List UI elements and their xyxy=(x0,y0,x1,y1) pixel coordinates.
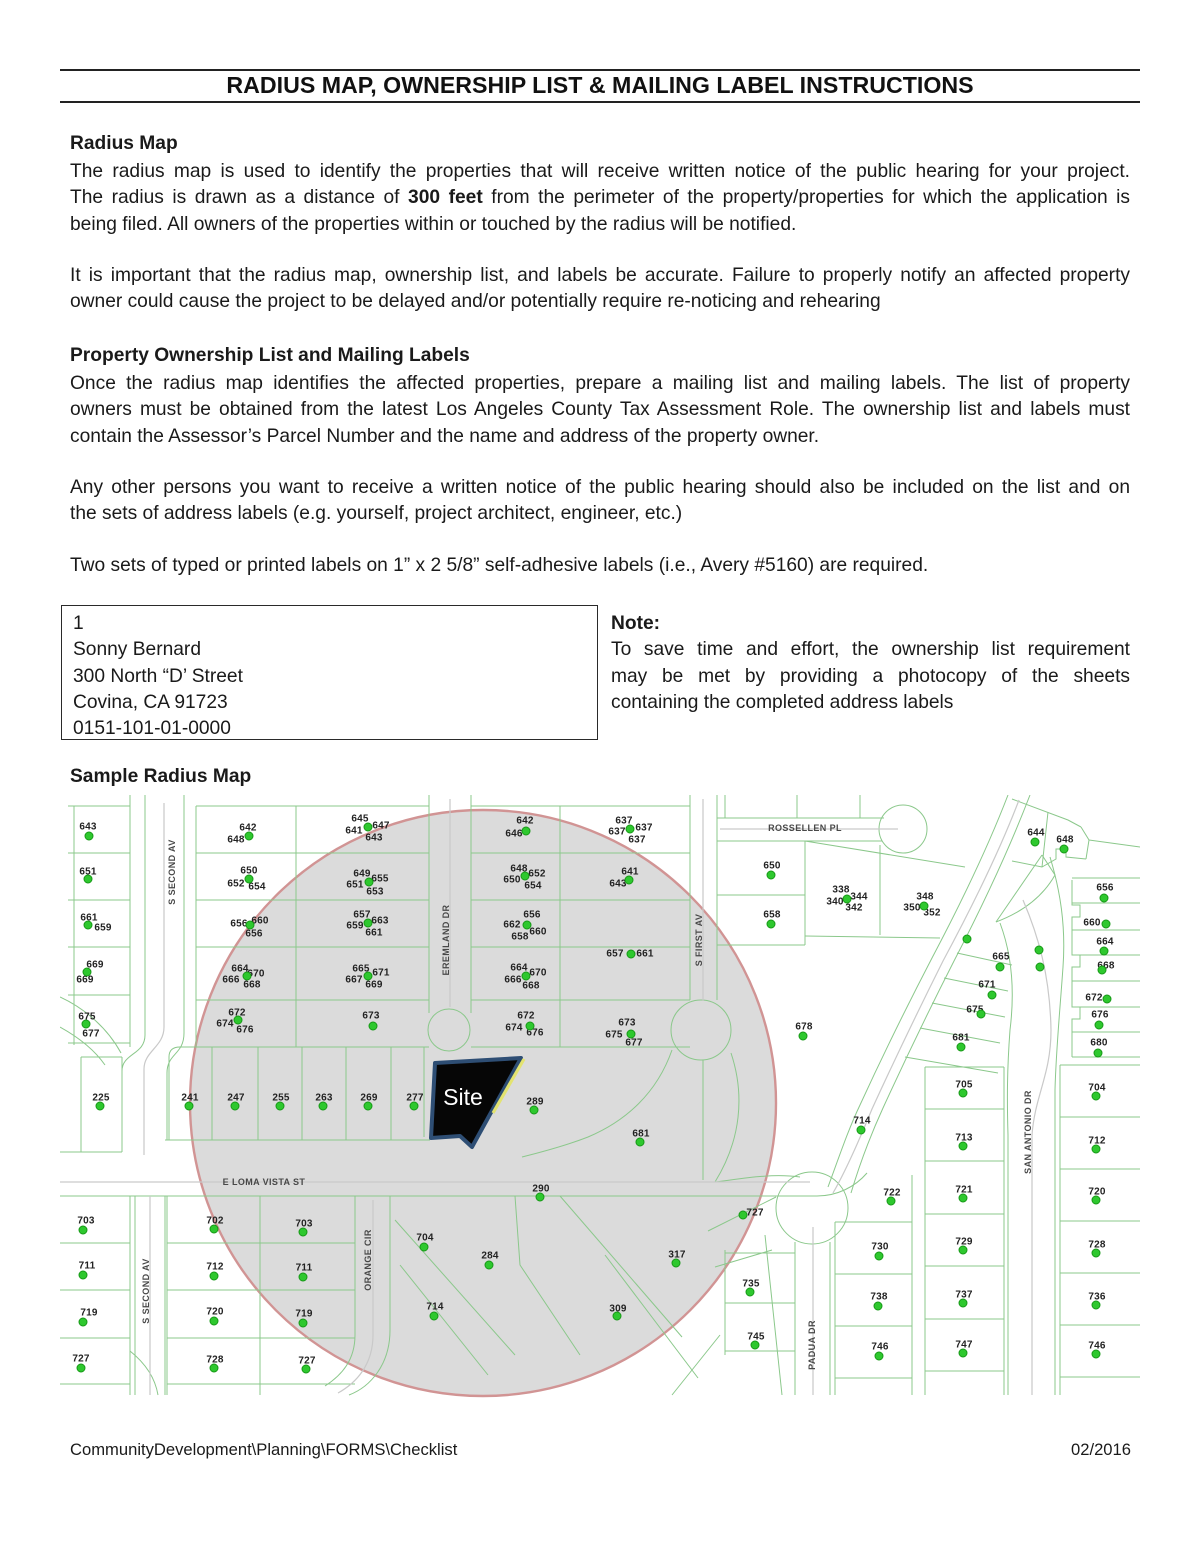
svg-text:S SECOND AV: S SECOND AV xyxy=(141,1258,151,1323)
svg-text:659: 659 xyxy=(94,923,112,934)
svg-text:656: 656 xyxy=(523,910,541,921)
svg-text:672: 672 xyxy=(1085,993,1103,1004)
svg-text:665: 665 xyxy=(992,952,1010,963)
svg-text:SAN ANTONIO DR: SAN ANTONIO DR xyxy=(1023,1090,1033,1174)
svg-text:711: 711 xyxy=(79,1261,96,1272)
svg-text:666: 666 xyxy=(504,975,522,986)
svg-text:719: 719 xyxy=(295,1309,313,1320)
svg-text:647: 647 xyxy=(372,821,390,832)
svg-text:730: 730 xyxy=(871,1242,889,1253)
svg-text:676: 676 xyxy=(1091,1010,1109,1021)
svg-text:746: 746 xyxy=(871,1342,889,1353)
svg-text:655: 655 xyxy=(371,874,389,885)
svg-text:643: 643 xyxy=(79,822,97,833)
svg-text:677: 677 xyxy=(625,1038,643,1049)
svg-text:Site: Site xyxy=(443,1084,483,1110)
svg-text:673: 673 xyxy=(362,1011,380,1022)
svg-text:652: 652 xyxy=(227,879,245,890)
svg-text:660: 660 xyxy=(529,927,547,938)
svg-text:637: 637 xyxy=(608,827,626,838)
svg-text:644: 644 xyxy=(1027,828,1045,839)
svg-text:727: 727 xyxy=(72,1354,90,1365)
svg-text:666: 666 xyxy=(222,975,240,986)
svg-text:661: 661 xyxy=(636,949,654,960)
svg-text:648: 648 xyxy=(227,835,245,846)
svg-text:650: 650 xyxy=(503,875,521,886)
svg-text:712: 712 xyxy=(206,1262,224,1273)
svg-text:711: 711 xyxy=(296,1263,313,1274)
svg-text:338: 338 xyxy=(832,885,850,896)
svg-text:703: 703 xyxy=(77,1216,95,1227)
svg-text:671: 671 xyxy=(372,968,390,979)
svg-text:674: 674 xyxy=(216,1019,234,1030)
svg-text:637: 637 xyxy=(635,823,653,834)
svg-text:677: 677 xyxy=(82,1029,100,1040)
svg-text:659: 659 xyxy=(346,921,364,932)
svg-text:704: 704 xyxy=(416,1233,434,1244)
svg-text:646: 646 xyxy=(505,829,523,840)
svg-text:681: 681 xyxy=(952,1033,970,1044)
svg-text:284: 284 xyxy=(481,1251,499,1262)
svg-text:714: 714 xyxy=(426,1302,444,1313)
svg-text:673: 673 xyxy=(618,1018,636,1029)
svg-text:641: 641 xyxy=(345,826,363,837)
svg-text:642: 642 xyxy=(516,816,534,827)
svg-text:ROSSELLEN PL: ROSSELLEN PL xyxy=(768,823,842,833)
svg-text:657: 657 xyxy=(606,949,624,960)
svg-text:E LOMA VISTA ST: E LOMA VISTA ST xyxy=(223,1177,306,1187)
svg-text:340: 340 xyxy=(826,897,844,908)
svg-text:S FIRST AV: S FIRST AV xyxy=(694,914,704,967)
svg-text:720: 720 xyxy=(206,1307,224,1318)
svg-text:678: 678 xyxy=(795,1022,813,1033)
svg-text:651: 651 xyxy=(346,880,364,891)
svg-text:348: 348 xyxy=(916,892,934,903)
svg-text:669: 669 xyxy=(76,975,94,986)
svg-text:738: 738 xyxy=(870,1292,888,1303)
svg-text:342: 342 xyxy=(845,903,863,914)
svg-text:658: 658 xyxy=(763,910,781,921)
svg-text:664: 664 xyxy=(1096,937,1114,948)
svg-text:656: 656 xyxy=(1096,883,1114,894)
svg-text:344: 344 xyxy=(850,892,868,903)
svg-text:650: 650 xyxy=(763,861,781,872)
svg-text:662: 662 xyxy=(503,920,521,931)
svg-text:670: 670 xyxy=(529,968,547,979)
svg-text:PADUA DR: PADUA DR xyxy=(807,1320,817,1370)
svg-text:672: 672 xyxy=(517,1011,535,1022)
svg-text:669: 669 xyxy=(365,980,383,991)
svg-text:658: 658 xyxy=(511,932,529,943)
svg-text:668: 668 xyxy=(243,980,261,991)
svg-text:EREMLAND DR: EREMLAND DR xyxy=(441,904,451,975)
svg-text:660: 660 xyxy=(1083,918,1101,929)
svg-text:350: 350 xyxy=(903,903,921,914)
svg-text:661: 661 xyxy=(365,928,383,939)
svg-text:674: 674 xyxy=(505,1023,523,1034)
svg-text:680: 680 xyxy=(1090,1038,1108,1049)
svg-text:S SECOND AV: S SECOND AV xyxy=(167,839,177,904)
svg-text:668: 668 xyxy=(522,981,540,992)
svg-text:643: 643 xyxy=(609,879,627,890)
svg-text:653: 653 xyxy=(366,887,384,898)
svg-text:656: 656 xyxy=(245,929,263,940)
svg-text:675: 675 xyxy=(605,1030,623,1041)
svg-text:714: 714 xyxy=(853,1116,871,1127)
svg-text:648: 648 xyxy=(1056,835,1074,846)
svg-text:676: 676 xyxy=(236,1025,254,1036)
svg-text:719: 719 xyxy=(80,1308,98,1319)
svg-text:663: 663 xyxy=(371,916,389,927)
svg-text:654: 654 xyxy=(524,881,542,892)
svg-text:ORANGE CIR: ORANGE CIR xyxy=(363,1229,373,1291)
svg-text:667: 667 xyxy=(345,975,363,986)
svg-text:654: 654 xyxy=(248,882,266,893)
svg-text:643: 643 xyxy=(365,833,383,844)
svg-text:727: 727 xyxy=(746,1208,764,1219)
svg-text:671: 671 xyxy=(978,980,996,991)
svg-text:637: 637 xyxy=(628,835,646,846)
svg-text:652: 652 xyxy=(528,869,546,880)
